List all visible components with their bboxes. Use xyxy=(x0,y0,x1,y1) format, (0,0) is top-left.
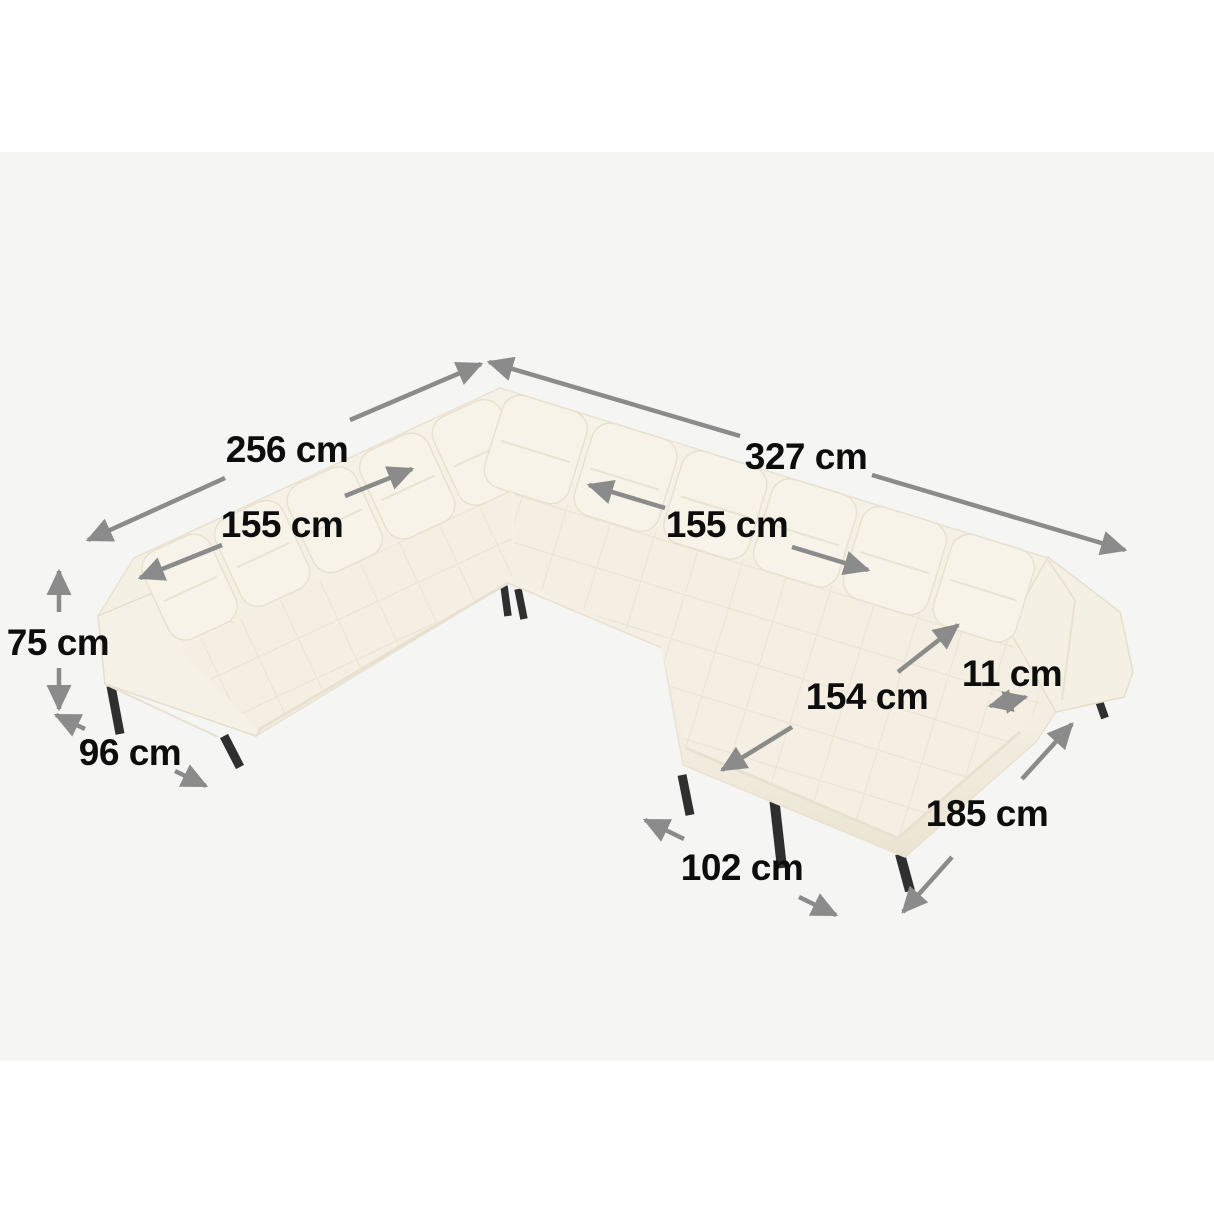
dim-label-height: 75 cm xyxy=(7,622,109,663)
dim-label-chaise-width: 102 cm xyxy=(681,847,804,888)
dim-label-right-back-total: 327 cm xyxy=(745,436,868,477)
dim-label-armrest-width: 11 cm xyxy=(962,653,1062,694)
dim-label-left-seat-width: 155 cm xyxy=(221,504,344,545)
sofa-dimensions-figure: 256 cm 327 cm 155 cm 155 cm 75 cm 96 cm xyxy=(0,0,1214,1214)
dim-label-right-seat-width: 155 cm xyxy=(666,504,789,545)
product-dimension-image: 256 cm 327 cm 155 cm 155 cm 75 cm 96 cm xyxy=(0,0,1214,1214)
sofa-leg xyxy=(504,586,508,616)
dim-label-right-side-total: 185 cm xyxy=(926,793,1049,834)
dim-label-chaise-length: 154 cm xyxy=(806,676,929,717)
dim-label-left-back-total: 256 cm xyxy=(226,429,349,470)
dim-label-depth: 96 cm xyxy=(79,732,181,773)
